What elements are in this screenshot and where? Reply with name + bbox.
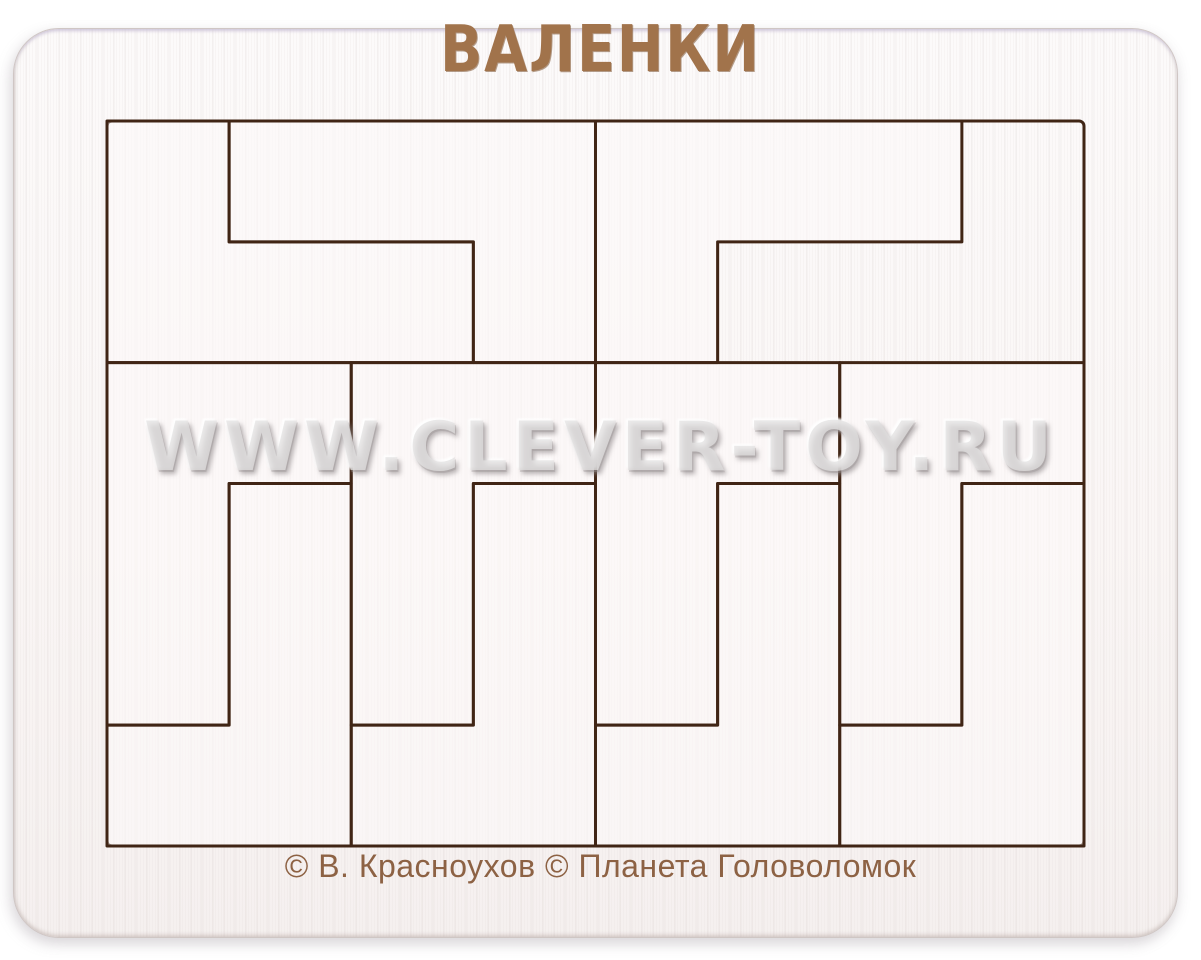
puzzle-product-photo: ВАЛЕНКИ WWW.CLEVER-TOY.RU © В. Красноухо… [0,0,1201,960]
piece-layer [107,121,1084,846]
copyright-text: © В. Красноухов © Планета Головоломок [0,848,1201,884]
puzzle-tray [0,0,1201,960]
